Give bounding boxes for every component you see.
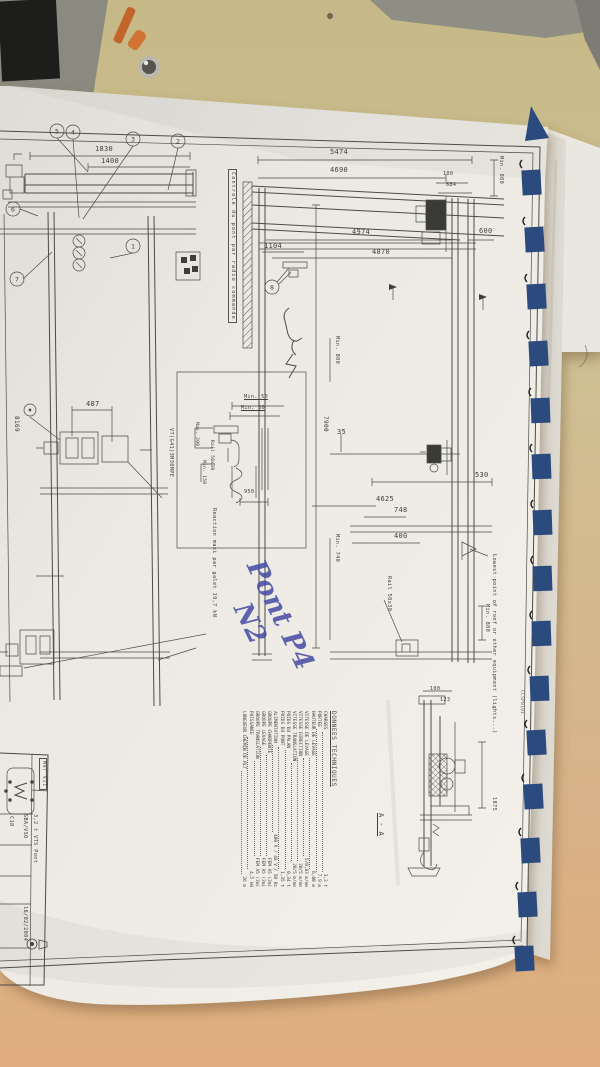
tech-data-row: LONGUEUR CHEMIN DE RLT26 m (240, 711, 246, 887)
tech-value: FEM A5 (2m) (253, 858, 259, 887)
dim-5474: 5474 (330, 149, 348, 156)
dim-4974: 4974 (352, 229, 370, 236)
section-label: A - A (377, 813, 384, 836)
tech-data-row: GROUPE CHARPENTEFEM A5 (2m) (265, 711, 271, 887)
tech-data-row: GROUPE LEVAGEFEM A5 (2m) (259, 711, 265, 887)
tech-value: FEM A5 (2m) (265, 858, 271, 887)
tech-value: 26 m (240, 876, 246, 887)
rail-ref-8169: 8169 (13, 416, 19, 432)
tech-label: GROUPE CHARPENTE (265, 711, 271, 753)
scene-graphics: 5 4 3 2 6 7 1 8 (0, 0, 600, 1067)
tech-data-row: GROUPE TRANSLATIONFEM A5 (2m) (253, 711, 259, 887)
tech-label: CHARGES (321, 711, 327, 730)
tech-data-row: CHARGES3,2 t (321, 711, 327, 887)
balloon-8: 8 (270, 284, 274, 292)
title-block-stamp: MAT VII (39, 758, 47, 790)
tech-label: HAUTEUR DE LEVAGE (308, 711, 314, 756)
tech-data-row: VITESSE DE LEVAGE5/0,83 m/mn (302, 711, 308, 887)
dim-950: 950 (244, 490, 254, 495)
tech-value: 20/5 m/mn (296, 863, 302, 887)
balloon-4: 4 (71, 129, 75, 137)
reaction-note: Reaction maxi par galet 19,7 kN (211, 508, 216, 617)
tech-data-row: HAUTEUR DE LEVAGE6,00 m (308, 711, 314, 887)
dim-530: 530 (475, 472, 489, 479)
tech-value: 6,00 m (308, 871, 314, 887)
dim-400: 400 (394, 533, 408, 540)
dim-35: 35 (337, 429, 346, 436)
dim-123: 123 (440, 698, 450, 703)
tech-data-row: POIDS DU PONT1,35 t (277, 711, 283, 887)
dark-object (0, 0, 60, 81)
tech-label: VITESSE TRANSLATION (290, 711, 296, 761)
photo-of-technical-drawing: 5 4 3 2 6 7 1 8 18 (0, 0, 600, 1067)
tech-value: 4,5 kW (246, 871, 252, 887)
balloon-5: 5 (55, 128, 59, 136)
min-800-top: Min. 800 (498, 156, 503, 184)
tech-data-row: VITESSE TRANSLATION20/5 m/mn (290, 711, 296, 887)
dim-600: 600 (479, 228, 493, 235)
tech-label: VITESSE DE LEVAGE (302, 711, 308, 756)
tech-label: GROUPE TRANSLATION (253, 711, 259, 759)
dim-min-50: Min. 50 (244, 395, 268, 400)
title-block-company: SBA/VSO (22, 814, 27, 839)
dim-1400: 1400 (101, 158, 119, 165)
tech-data-row: POIDS DU PALAN0,34 t (284, 711, 290, 887)
screw-ring (138, 56, 160, 78)
dim-487: 487 (86, 401, 100, 408)
tech-value: FEM A5 (2m) (259, 858, 265, 887)
sheet-ref-code: CLSP0191 (519, 690, 523, 714)
tech-value: 7,9 m (315, 874, 321, 887)
min-800-roof: Min. 800 (484, 604, 489, 632)
tech-label: POIDS DU PONT (277, 711, 283, 745)
tech-value: 0,34 t (284, 871, 290, 887)
radio-control-note: Controle du pont par radio commande (228, 169, 237, 323)
tech-label: GROUPE LEVAGE (259, 711, 265, 745)
tech-value: 3,2 t (321, 874, 327, 887)
tech-label: PUISSANCE (246, 711, 252, 735)
technical-data-block: DONNEES TECHNIQUES CHARGES3,2 t PORTEE7,… (233, 711, 337, 887)
tech-label: VITESSE DIRECTION (296, 711, 302, 756)
rail-label-detail: Rail 50x30 (209, 440, 213, 470)
dim-4870: 4870 (372, 249, 390, 256)
dim-748: 748 (394, 507, 408, 514)
dim-max-200: Max. 200 (194, 422, 198, 446)
tech-label: PORTEE (315, 711, 321, 727)
technical-data-title: DONNEES TECHNIQUES (330, 711, 337, 887)
dim-1104: 1104 (264, 243, 282, 250)
dim-min-30: Min. 30 (241, 406, 265, 411)
tech-label: LONGUEUR CHEMIN DE RLT (240, 711, 246, 769)
table-mark (327, 13, 333, 19)
title-block-date: 16/02/2004 (22, 906, 27, 941)
dim-1875: 1875 (491, 797, 496, 811)
tech-value: 400 V / 48 V / 50 Hz (271, 834, 277, 887)
dim-4625: 4625 (376, 496, 394, 503)
title-block-ref: C18 (8, 816, 13, 827)
balloon-1: 1 (131, 243, 135, 251)
hoist-reference: VT(G41)3M30MPE (168, 428, 173, 477)
tech-value: 1,35 t (277, 871, 283, 887)
dim-4690: 4690 (330, 167, 348, 174)
dim-1830: 1830 (95, 146, 113, 153)
dim-100-top: 100 (443, 172, 453, 177)
dim-min-150: Min. 150 (201, 460, 205, 484)
dim-100-section: 100 (430, 687, 440, 692)
lowest-point-note: Lowest point of roof or other equipment … (491, 554, 496, 734)
tech-label: POIDS DU PALAN (284, 711, 290, 748)
tech-data-row: PORTEE7,9 m (315, 711, 321, 887)
dim-684: 684 (446, 183, 456, 188)
title-block-drawing-title: 3,2 t VTS Pont (32, 814, 37, 863)
min-800-mid: Min. 800 (334, 336, 339, 364)
balloon-3: 3 (131, 136, 135, 144)
dim-7900: 7900 (322, 416, 328, 432)
tech-data-row: ALIMENTATION400 V / 48 V / 50 Hz (271, 711, 277, 887)
tech-value: 20/5 m/mn (290, 863, 296, 887)
min-740: Min. 740 (334, 534, 339, 562)
rail-label-elevation: Rail 50x30 (386, 576, 391, 611)
tech-label: ALIMENTATION (271, 711, 277, 743)
balloon-2: 2 (176, 138, 180, 146)
tech-value: 5/0,83 m/mn (302, 858, 308, 887)
balloon-7: 7 (15, 276, 19, 284)
balloon-6: 6 (11, 206, 15, 214)
